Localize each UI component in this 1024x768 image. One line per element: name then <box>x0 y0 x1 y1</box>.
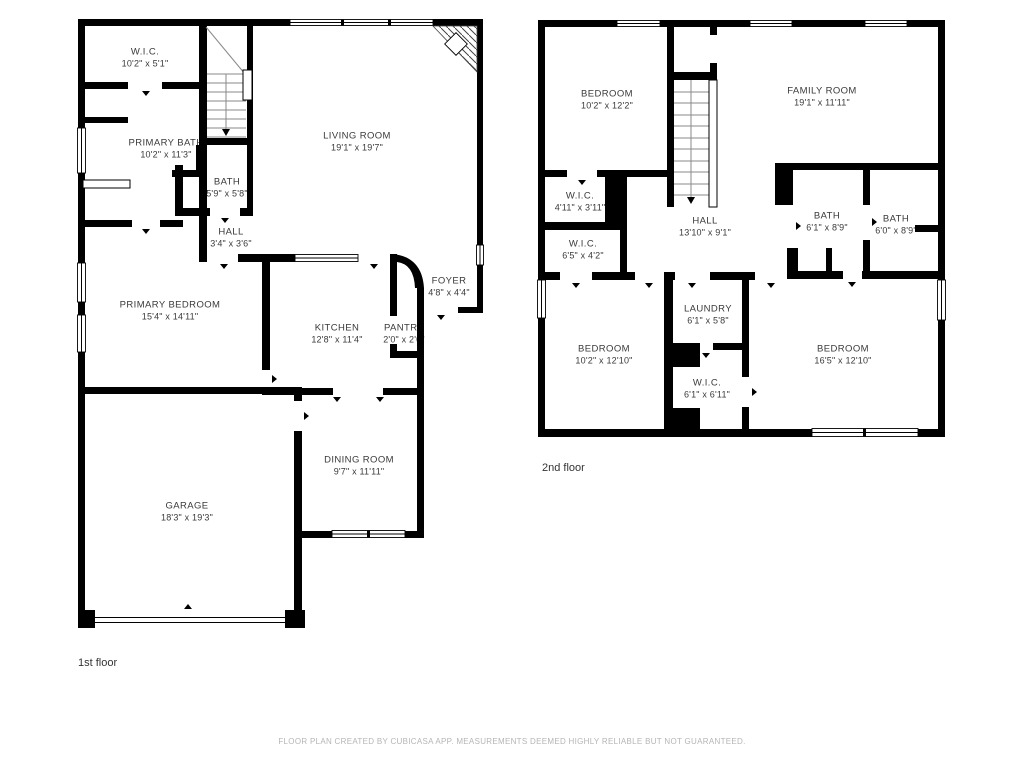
room-labels-layer: W.I.C. 10'2" x 5'1" PRIMARY BATH 10'2" x… <box>0 0 1024 768</box>
room-dims: 10'2" x 12'2" <box>581 100 633 111</box>
room-name: PANTRY <box>384 322 424 334</box>
room-name: BEDROOM <box>817 343 869 355</box>
room-name: BATH <box>814 210 840 222</box>
floor-caption-1: 1st floor <box>78 657 117 669</box>
room-dims: 19'1" x 19'7" <box>331 142 383 153</box>
room-dims: 2'0" x 2'0" <box>383 334 425 345</box>
room-label-pantry: PANTRY 2'0" x 2'0" <box>383 322 425 345</box>
room-dims: 3'4" x 3'6" <box>210 238 252 249</box>
room-dims: 4'11" x 3'11" <box>555 202 606 213</box>
room-name: BEDROOM <box>581 88 633 100</box>
room-name: BATH <box>214 176 240 188</box>
room-name: LAUNDRY <box>684 303 732 315</box>
room-label-wic-2f-b: W.I.C. 6'5" x 4'2" <box>562 238 604 261</box>
room-name: FAMILY ROOM <box>787 85 857 97</box>
room-label-hall-2f: HALL 13'10" x 9'1" <box>679 215 731 238</box>
room-name: PRIMARY BATH <box>128 137 203 149</box>
room-dims: 18'3" x 19'3" <box>161 512 213 523</box>
room-name: W.I.C. <box>693 377 721 389</box>
room-dims: 10'2" x 5'1" <box>122 58 169 69</box>
room-label-foyer: FOYER 4'8" x 4'4" <box>428 275 470 298</box>
room-dims: 10'2" x 11'3" <box>140 149 191 160</box>
room-name: HALL <box>692 215 717 227</box>
room-dims: 5'9" x 5'8" <box>206 188 248 199</box>
room-dims: 6'0" x 8'9" <box>875 225 917 236</box>
room-label-kitchen: KITCHEN 12'8" x 11'4" <box>311 322 362 345</box>
room-dims: 4'8" x 4'4" <box>428 287 470 298</box>
room-label-garage: GARAGE 18'3" x 19'3" <box>161 500 213 523</box>
room-name: HALL <box>218 226 243 238</box>
room-dims: 12'8" x 11'4" <box>311 334 362 345</box>
room-name: GARAGE <box>165 500 208 512</box>
room-dims: 6'1" x 6'11" <box>684 389 730 400</box>
disclaimer-text: FLOOR PLAN CREATED BY CUBICASA APP. MEAS… <box>0 737 1024 746</box>
room-name: BATH <box>883 213 909 225</box>
room-label-dining-room: DINING ROOM 9'7" x 11'11" <box>324 454 394 477</box>
room-name: KITCHEN <box>315 322 360 334</box>
room-name: W.I.C. <box>569 238 597 250</box>
room-label-wic-2f-c: W.I.C. 6'1" x 6'11" <box>684 377 730 400</box>
room-label-bedroom-nw: BEDROOM 10'2" x 12'2" <box>581 88 633 111</box>
room-name: FOYER <box>432 275 467 287</box>
room-label-wic-1f: W.I.C. 10'2" x 5'1" <box>122 46 169 69</box>
room-name: LIVING ROOM <box>323 130 391 142</box>
room-name: W.I.C. <box>131 46 159 58</box>
floor-caption-2: 2nd floor <box>542 462 585 474</box>
room-dims: 6'1" x 5'8" <box>687 315 729 326</box>
room-name: BEDROOM <box>578 343 630 355</box>
room-label-wic-2f-a: W.I.C. 4'11" x 3'11" <box>555 190 606 213</box>
room-dims: 15'4" x 14'11" <box>142 311 199 322</box>
room-label-bath-2f-a: BATH 6'1" x 8'9" <box>806 210 848 233</box>
room-dims: 16'5" x 12'10" <box>814 355 871 366</box>
room-dims: 19'1" x 11'11" <box>794 97 850 108</box>
room-name: DINING ROOM <box>324 454 394 466</box>
room-dims: 6'1" x 8'9" <box>806 222 848 233</box>
room-label-family-room: FAMILY ROOM 19'1" x 11'11" <box>787 85 857 108</box>
room-label-living-room: LIVING ROOM 19'1" x 19'7" <box>323 130 391 153</box>
room-dims: 6'5" x 4'2" <box>562 250 604 261</box>
room-name: W.I.C. <box>566 190 594 202</box>
room-dims: 13'10" x 9'1" <box>679 227 731 238</box>
room-label-hall-1f: HALL 3'4" x 3'6" <box>210 226 252 249</box>
room-name: PRIMARY BEDROOM <box>120 299 221 311</box>
room-label-laundry: LAUNDRY 6'1" x 5'8" <box>684 303 732 326</box>
room-label-bath-1f: BATH 5'9" x 5'8" <box>206 176 248 199</box>
room-label-bedroom-se: BEDROOM 16'5" x 12'10" <box>814 343 871 366</box>
room-dims: 10'2" x 12'10" <box>575 355 632 366</box>
room-label-primary-bedroom: PRIMARY BEDROOM 15'4" x 14'11" <box>120 299 221 322</box>
room-label-bath-2f-b: BATH 6'0" x 8'9" <box>875 213 917 236</box>
room-label-primary-bath: PRIMARY BATH 10'2" x 11'3" <box>128 137 203 160</box>
room-dims: 9'7" x 11'11" <box>334 466 385 477</box>
room-label-bedroom-sw: BEDROOM 10'2" x 12'10" <box>575 343 632 366</box>
floor-plan-page: W.I.C. 10'2" x 5'1" PRIMARY BATH 10'2" x… <box>0 0 1024 768</box>
